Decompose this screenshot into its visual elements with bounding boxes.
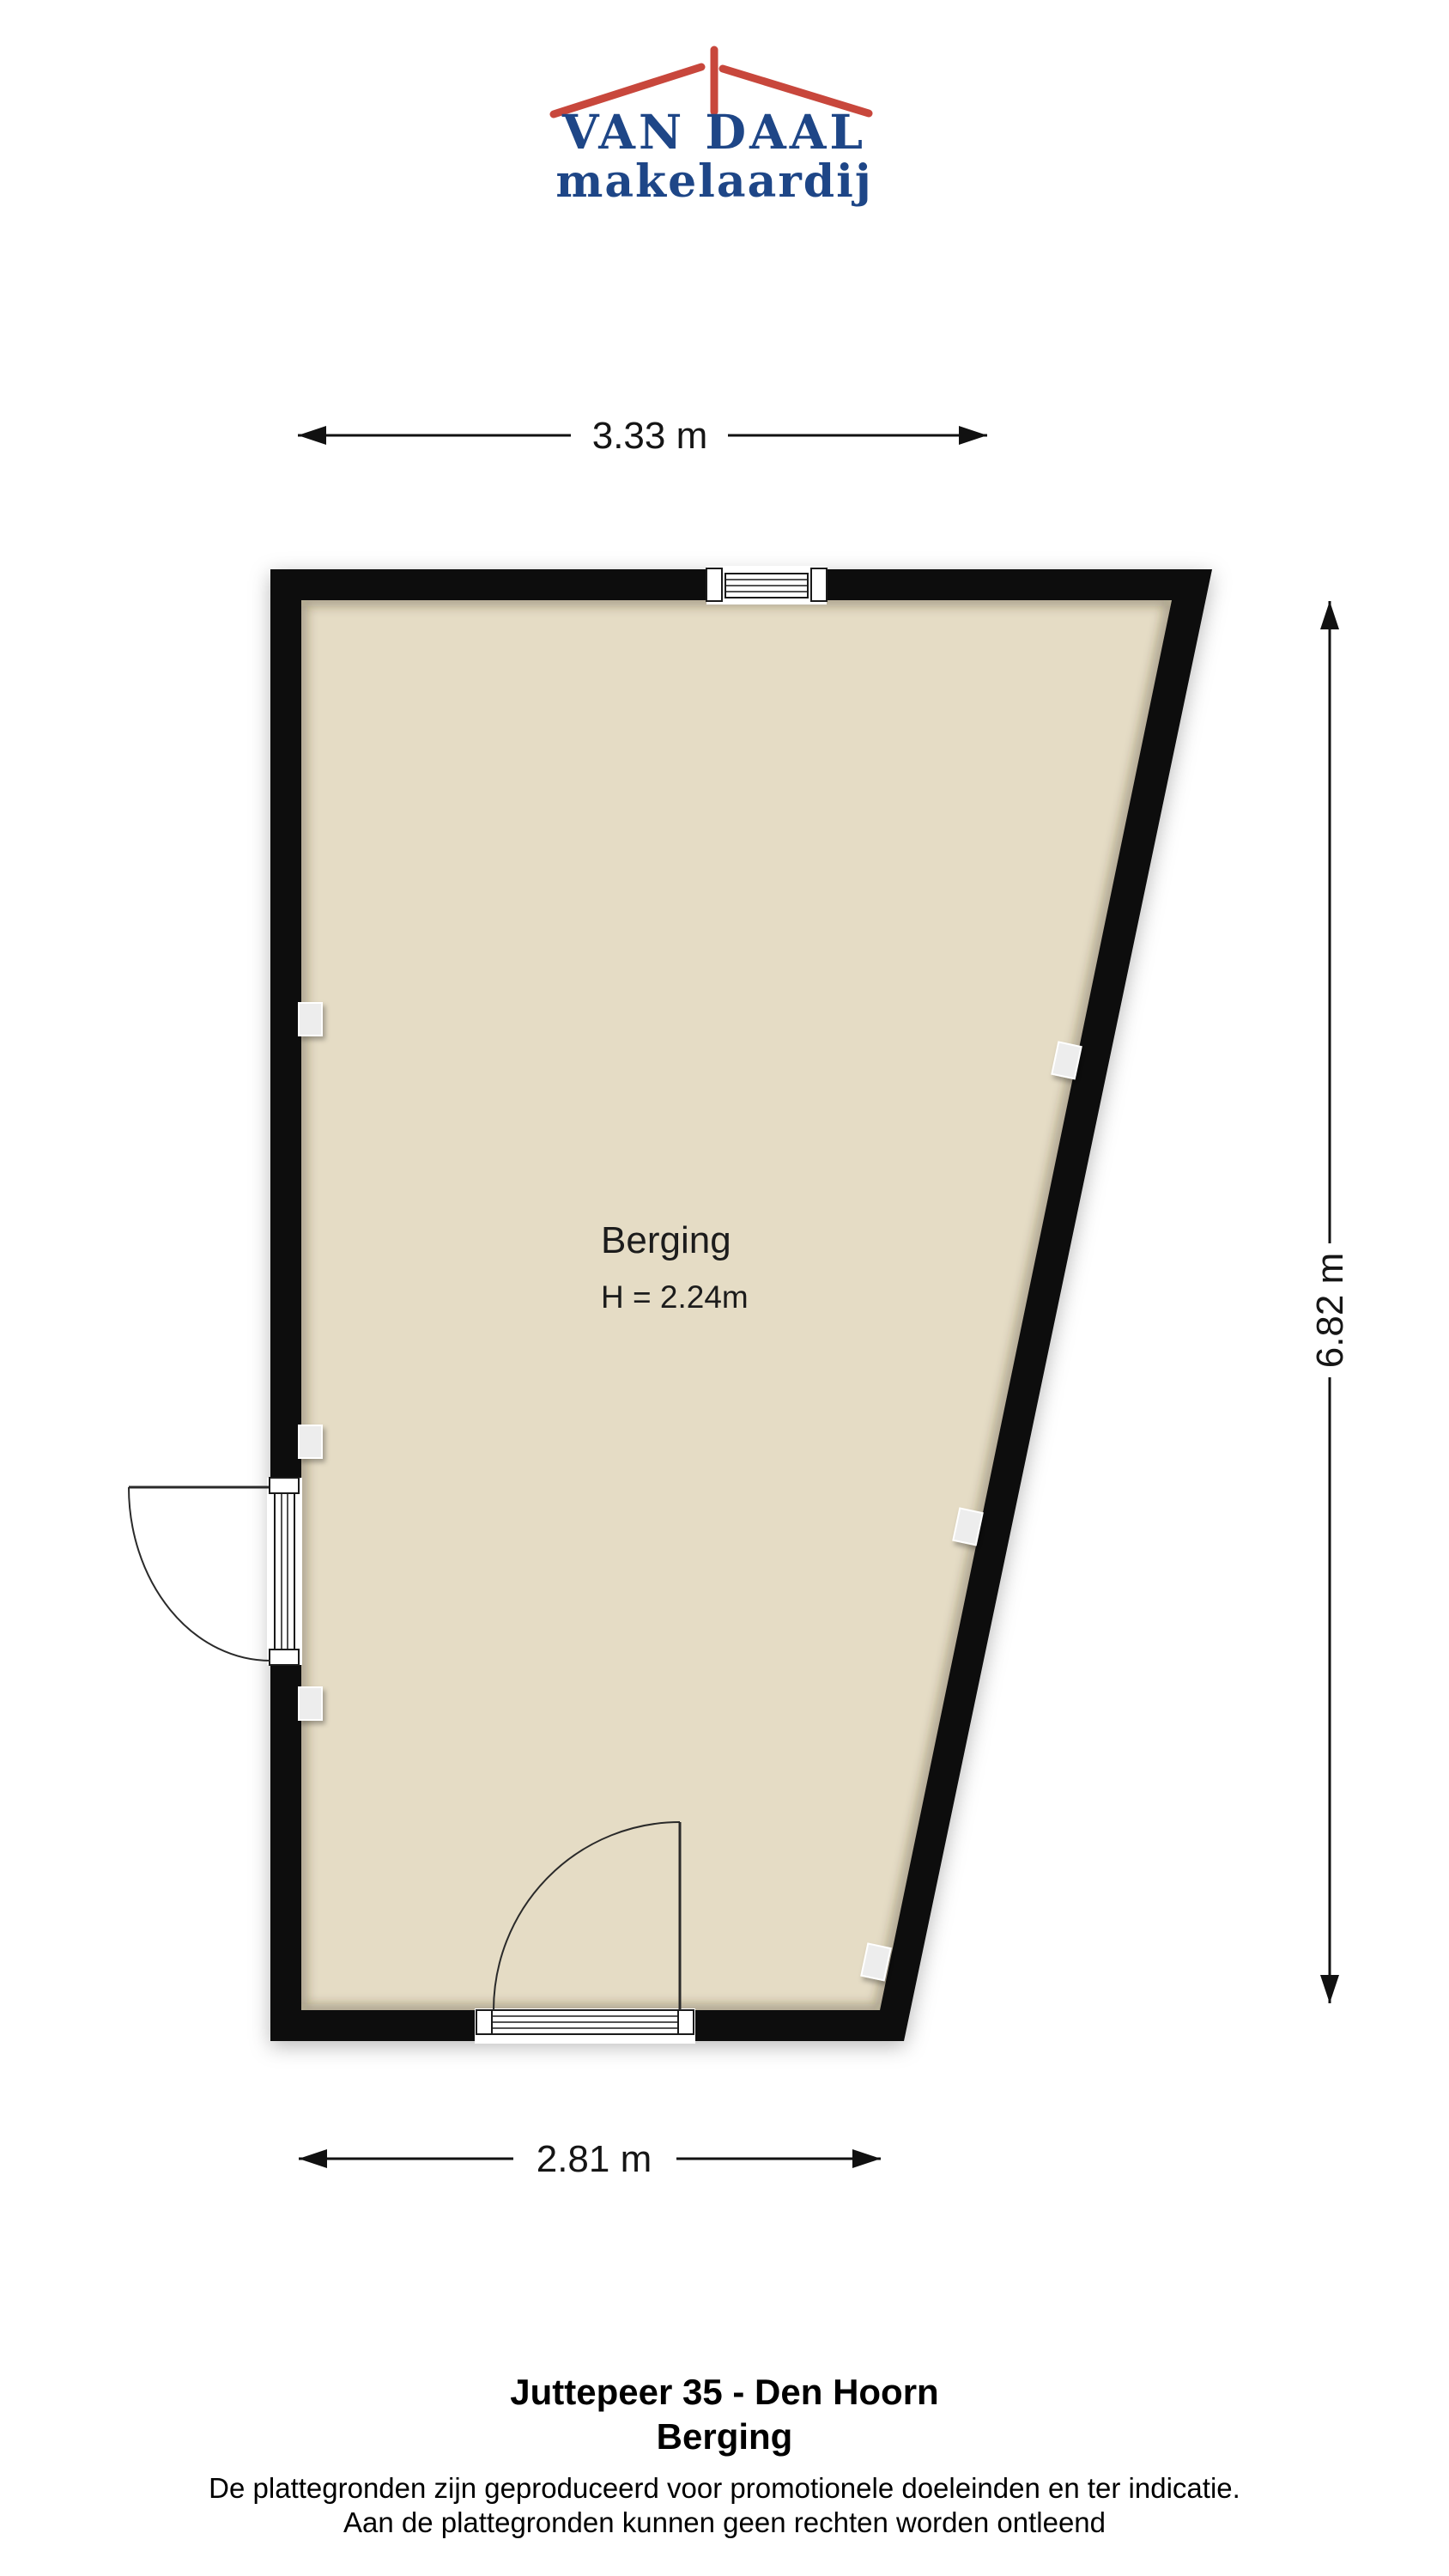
window-jamb	[706, 568, 722, 601]
arrow-left-icon	[299, 2149, 327, 2168]
door-jamb	[476, 2010, 492, 2034]
dimension-right-label: 6.82 m	[1309, 1253, 1351, 1369]
footer-disclaimer-line2: Aan de plattegronden kunnen geen rechten…	[0, 2506, 1449, 2540]
door-glass-panel	[275, 1493, 294, 1649]
arrow-left-icon	[298, 426, 326, 445]
arrow-right-icon	[852, 2149, 881, 2168]
wall-fixture	[299, 1003, 322, 1036]
dimension-top-label: 3.33 m	[592, 415, 708, 457]
door-jamb	[270, 1478, 299, 1493]
window-jamb	[811, 568, 827, 601]
footer-address: Juttepeer 35 - Den Hoorn	[0, 2370, 1449, 2415]
wall-fixture	[299, 1687, 322, 1720]
dimension-bottom: 2.81 m	[299, 2138, 881, 2180]
arrow-down-icon	[1320, 1975, 1339, 2003]
door-swing-arc	[129, 1487, 270, 1661]
floorplan-page: VAN DAAL makelaardij	[0, 0, 1449, 2576]
arrow-right-icon	[959, 426, 987, 445]
dimension-top: 3.33 m	[298, 415, 987, 457]
arrow-up-icon	[1320, 601, 1339, 629]
dimension-right: 6.82 m	[1309, 601, 1351, 2003]
window-top	[706, 566, 827, 605]
door-jamb	[270, 1649, 299, 1665]
door-jamb	[678, 2010, 694, 2034]
room-label: Berging	[601, 1219, 731, 1261]
footer-disclaimer-line1: De plattegronden zijn geproduceerd voor …	[0, 2471, 1449, 2506]
footer-room-name: Berging	[0, 2415, 1449, 2459]
wall-fixture	[299, 1425, 322, 1458]
door-left	[129, 1478, 302, 1665]
room-height-label: H = 2.24m	[601, 1279, 749, 1315]
footer: Juttepeer 35 - Den Hoorn Berging De plat…	[0, 2370, 1449, 2540]
dimension-bottom-label: 2.81 m	[537, 2138, 652, 2180]
floorplan-drawing: Berging H = 2.24m 3.33 m 6.82 m 2.81 m	[0, 0, 1449, 2576]
